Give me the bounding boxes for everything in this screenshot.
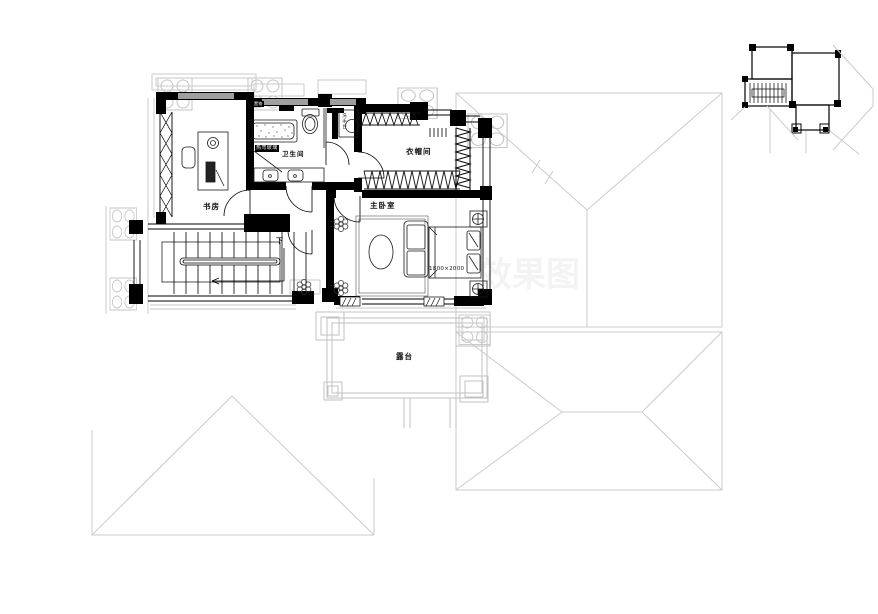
stair-down-label: 下 (276, 238, 284, 245)
room-label-terrace: 露台 (396, 353, 413, 361)
watermark: 效果图 (478, 258, 588, 294)
room-label-bedroom: 主卧室 (370, 202, 396, 210)
bedroom-furniture (356, 211, 487, 297)
glass-annotation-chip: 热弯玻璃 (255, 145, 279, 152)
roof-bottom-right (456, 332, 722, 490)
room-label-study: 书房 (203, 203, 220, 211)
walls (129, 92, 492, 306)
floorplan-linework (0, 0, 878, 614)
roof-bottom-left (92, 396, 374, 535)
terrace-outline (316, 312, 490, 428)
bed-size-label: 1800×2000 (429, 267, 464, 273)
shelf-annotation-chip: 置物 (253, 101, 264, 107)
staircase (162, 232, 306, 294)
room-label-bathroom: 卫生间 (282, 151, 305, 158)
basin-vertical-label: 洗手台 (341, 113, 346, 130)
key-plan (742, 44, 841, 133)
floorplan-canvas: 书房 卫生间 衣帽间 主卧室 露台 下 1800×2000 热弯玻璃 置物 洗手… (0, 0, 878, 614)
study-furniture (182, 132, 228, 190)
plant-symbols (297, 216, 348, 295)
room-label-closet: 衣帽间 (406, 148, 432, 156)
